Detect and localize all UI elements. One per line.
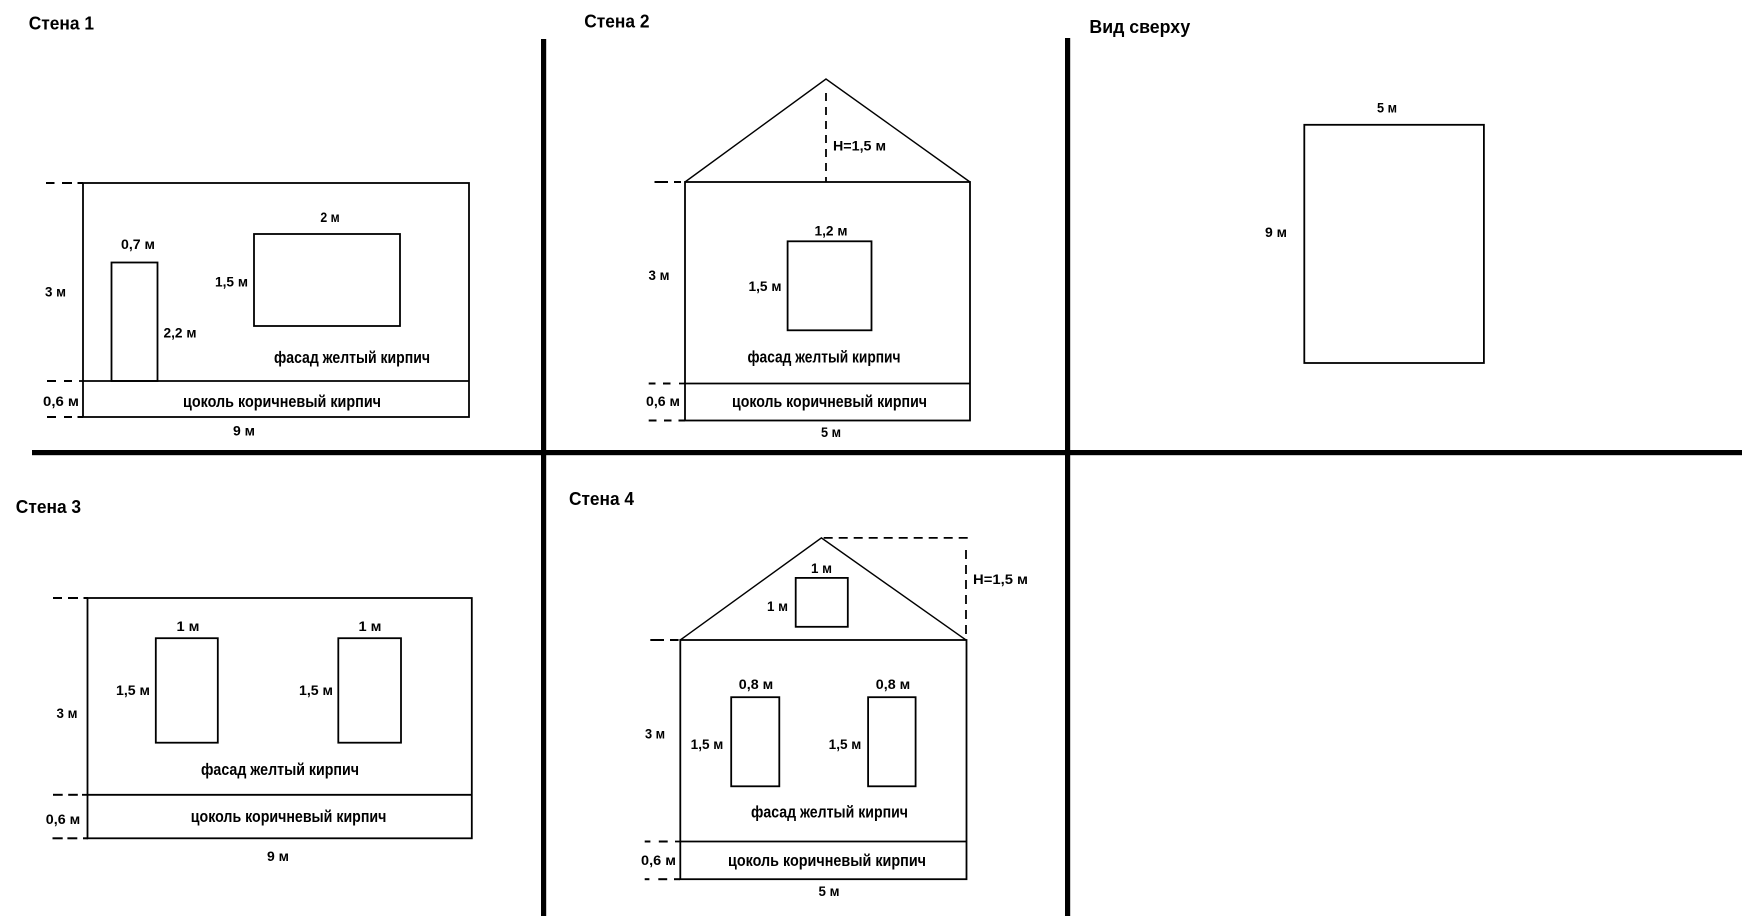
svg-text:2,2 м: 2,2 м	[164, 324, 197, 340]
svg-text:1,5 м: 1,5 м	[215, 274, 248, 290]
svg-text:9 м: 9 м	[233, 423, 255, 439]
svg-text:0,8 м: 0,8 м	[876, 676, 910, 692]
svg-text:Стена 2: Стена 2	[584, 12, 649, 32]
svg-text:5 м: 5 м	[1377, 100, 1397, 116]
svg-text:цоколь коричневый кирпич: цоколь коричневый кирпич	[191, 807, 387, 826]
svg-text:цоколь коричневый кирпич: цоколь коричневый кирпич	[728, 851, 926, 870]
svg-text:5 м: 5 м	[819, 883, 840, 899]
svg-text:1,5 м: 1,5 м	[749, 278, 782, 294]
svg-text:0,6 м: 0,6 м	[43, 393, 79, 409]
svg-text:0,6 м: 0,6 м	[641, 852, 676, 868]
svg-text:1,5 м: 1,5 м	[829, 736, 862, 752]
svg-text:1 м: 1 м	[359, 618, 382, 634]
svg-text:0,6 м: 0,6 м	[646, 393, 680, 409]
svg-text:фасад желтый кирпич: фасад желтый кирпич	[751, 803, 908, 822]
svg-text:фасад желтый кирпич: фасад желтый кирпич	[201, 760, 359, 779]
svg-text:5 м: 5 м	[821, 424, 841, 440]
svg-text:1,5 м: 1,5 м	[299, 682, 333, 698]
svg-text:3 м: 3 м	[645, 726, 665, 742]
svg-text:0,8 м: 0,8 м	[739, 676, 773, 692]
svg-text:1 м: 1 м	[811, 560, 832, 576]
svg-text:Стена 1: Стена 1	[29, 14, 94, 34]
svg-text:0,7 м: 0,7 м	[121, 236, 155, 252]
svg-text:цоколь коричневый кирпич: цоколь коричневый кирпич	[732, 392, 927, 411]
svg-text:3 м: 3 м	[57, 705, 78, 721]
svg-text:3 м: 3 м	[45, 283, 66, 299]
svg-text:1,2 м: 1,2 м	[815, 223, 848, 239]
svg-text:1,5 м: 1,5 м	[691, 736, 724, 752]
svg-text:Стена 3: Стена 3	[16, 497, 81, 517]
svg-text:9 м: 9 м	[1265, 224, 1287, 240]
svg-text:1,5 м: 1,5 м	[116, 682, 150, 698]
svg-text:1 м: 1 м	[177, 618, 200, 634]
svg-text:фасад желтый кирпич: фасад желтый кирпич	[748, 348, 901, 367]
svg-text:цоколь коричневый кирпич: цоколь коричневый кирпич	[183, 392, 381, 411]
svg-text:Н=1,5 м: Н=1,5 м	[973, 571, 1028, 587]
svg-text:9 м: 9 м	[267, 848, 289, 864]
svg-text:0,6 м: 0,6 м	[46, 811, 80, 827]
svg-text:Вид сверху: Вид сверху	[1089, 17, 1190, 37]
svg-text:3 м: 3 м	[649, 267, 670, 283]
svg-text:Стена 4: Стена 4	[569, 489, 634, 509]
svg-text:2 м: 2 м	[320, 209, 339, 225]
svg-text:1 м: 1 м	[767, 598, 788, 614]
svg-text:фасад желтый кирпич: фасад желтый кирпич	[274, 348, 430, 367]
svg-text:Н=1,5 м: Н=1,5 м	[833, 137, 886, 153]
